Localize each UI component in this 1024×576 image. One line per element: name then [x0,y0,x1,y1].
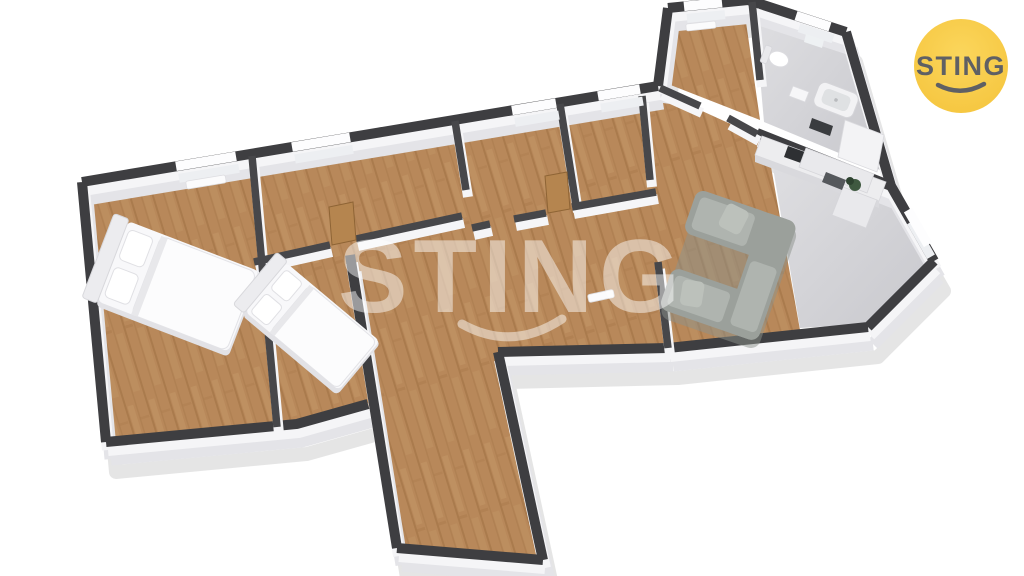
wooden-door-room [545,172,570,213]
sting-watermark: STING [338,219,686,337]
plant-leaf [846,177,854,185]
floor-plan-render: STING STING [0,0,1024,576]
floor-plan-svg: STING STING [0,0,1024,576]
logo-text: STING [916,51,1006,81]
sting-logo: STING [914,19,1008,113]
watermark-text: STING [338,219,686,335]
